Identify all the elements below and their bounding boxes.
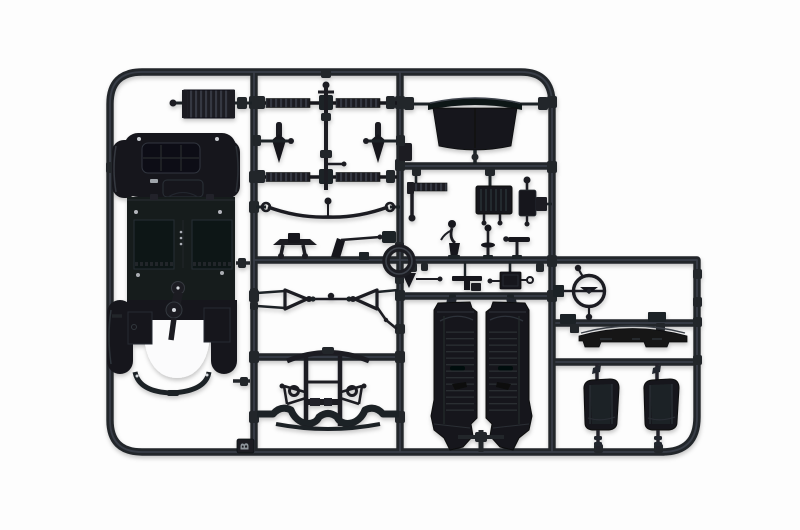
gearbox-part <box>488 263 545 289</box>
door-panel-left <box>431 294 477 450</box>
dashboard-part <box>399 97 548 164</box>
t-bracket-part <box>452 263 482 291</box>
seat-left <box>584 363 619 450</box>
cowl-panel-part <box>560 312 687 347</box>
radiator-panel-part <box>170 90 253 118</box>
valance-part <box>257 408 399 429</box>
dagger-link-left <box>252 122 294 163</box>
sprue-tag: B <box>237 439 254 453</box>
valve-handle-part <box>503 236 530 259</box>
canister-part <box>519 177 536 227</box>
sprue-photo: B <box>0 0 800 530</box>
engine-block-part <box>476 168 512 226</box>
link-rod <box>310 293 351 302</box>
photo-canvas: B <box>0 0 800 530</box>
pedal-bar-part <box>407 168 447 222</box>
door-panel-right <box>486 294 532 450</box>
gear-lever-part <box>441 220 460 259</box>
pedal-platform-part <box>273 233 317 259</box>
steering-wheel-part <box>553 265 605 320</box>
sprue-tag-label: B <box>240 442 252 450</box>
shift-lever-part <box>481 225 495 260</box>
control-arm-right <box>350 290 398 329</box>
chassis-body-part <box>107 133 250 396</box>
leaf-spring-part <box>256 198 400 218</box>
seat-right <box>644 363 679 450</box>
control-arm-left <box>250 288 312 310</box>
